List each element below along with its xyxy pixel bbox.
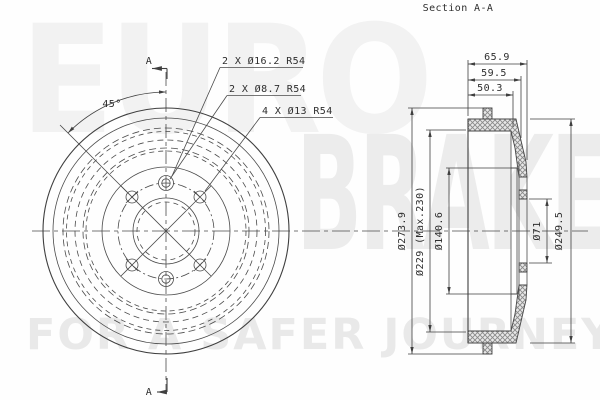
angle-label: 45° [102, 99, 121, 110]
hole-callouts: 2 X Ø16.2 R54 2 X Ø8.7 R54 4 X Ø13 R54 [170, 55, 333, 191]
callout-bolt-holes-label: 4 X Ø13 R54 [262, 105, 333, 117]
section-marker-label-bottom: A [146, 387, 152, 398]
dim-center-bore-dia: Ø71 [531, 221, 543, 240]
flange-rim-top [483, 108, 492, 119]
drawing-svg: 45° 2 X Ø16.2 R54 2 X Ø8.7 R54 4 X Ø13 R… [0, 0, 600, 400]
dim-drum-inner-dia: Ø229 (Max.230) [414, 186, 426, 276]
callout-leader [172, 68, 220, 177]
callout-leader [170, 96, 227, 180]
callout-small-hole-label: 2 X Ø8.7 R54 [229, 83, 306, 95]
dim-mid-depth: 59.5 [481, 68, 507, 79]
hub-web-bottom [519, 263, 527, 272]
dim-hub-recess-dia: Ø140.6 [433, 212, 445, 251]
angle-dimension: 45° [60, 92, 166, 192]
section-title: Section A-A [423, 3, 494, 14]
section-cut-markers: A A [146, 56, 167, 398]
section-view: Section A-A [396, 3, 575, 354]
front-view: 45° 2 X Ø16.2 R54 2 X Ø8.7 R54 4 X Ø13 R… [43, 55, 333, 398]
flange-rim-bottom [483, 343, 492, 354]
hub-web-top [519, 190, 527, 199]
angle-reference-line [60, 125, 127, 192]
section-marker-label-top: A [146, 56, 152, 67]
dim-drum-outer-dia: Ø249.5 [553, 212, 565, 251]
dim-flange-dia: Ø273.9 [396, 212, 408, 251]
dim-total-depth: 65.9 [484, 52, 510, 63]
dim-inner-depth: 50.3 [477, 83, 503, 94]
technical-drawing-page: EURO BRAKE FOR A SAFER JOURNEY [0, 0, 600, 400]
callout-counterbore-label: 2 X Ø16.2 R54 [222, 55, 305, 67]
